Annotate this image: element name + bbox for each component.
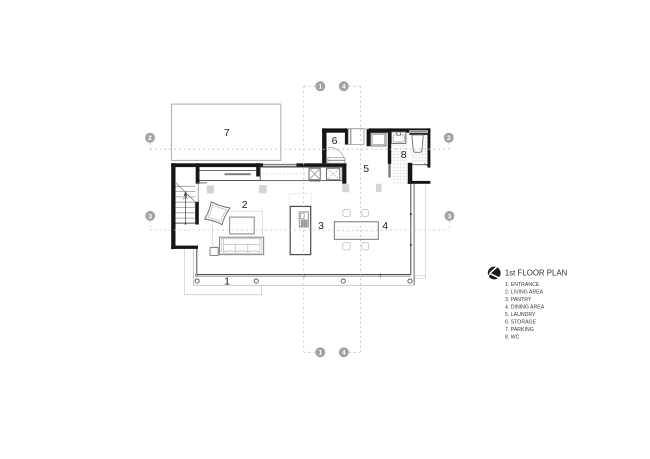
svg-text:2: 2 [242,199,248,211]
svg-text:8: 8 [401,149,407,161]
svg-text:4: 4 [342,84,346,91]
svg-text:2. LIVING AREA: 2. LIVING AREA [505,289,544,295]
svg-text:1. ENTRANCE: 1. ENTRANCE [505,282,540,288]
svg-text:3. PANTRY: 3. PANTRY [505,297,532,303]
svg-text:4: 4 [382,220,388,232]
svg-text:3: 3 [448,213,452,220]
svg-text:7. PARKING: 7. PARKING [505,327,534,333]
svg-text:8. WC: 8. WC [505,334,520,340]
svg-text:7: 7 [224,127,230,139]
svg-text:1: 1 [318,350,322,357]
svg-text:6: 6 [332,135,338,147]
svg-text:6. STORAGE: 6. STORAGE [505,319,537,325]
svg-text:3: 3 [318,220,324,232]
svg-text:5. LAUNDRY: 5. LAUNDRY [505,312,536,318]
svg-text:3: 3 [148,213,152,220]
svg-text:1st FLOOR PLAN: 1st FLOOR PLAN [505,268,567,278]
svg-text:2: 2 [148,135,152,142]
svg-text:1: 1 [318,84,322,91]
svg-text:4. DINING AREA: 4. DINING AREA [505,304,545,310]
svg-text:5: 5 [363,163,369,175]
svg-text:2: 2 [447,135,451,142]
svg-text:4: 4 [342,350,346,357]
svg-text:1: 1 [224,275,230,287]
